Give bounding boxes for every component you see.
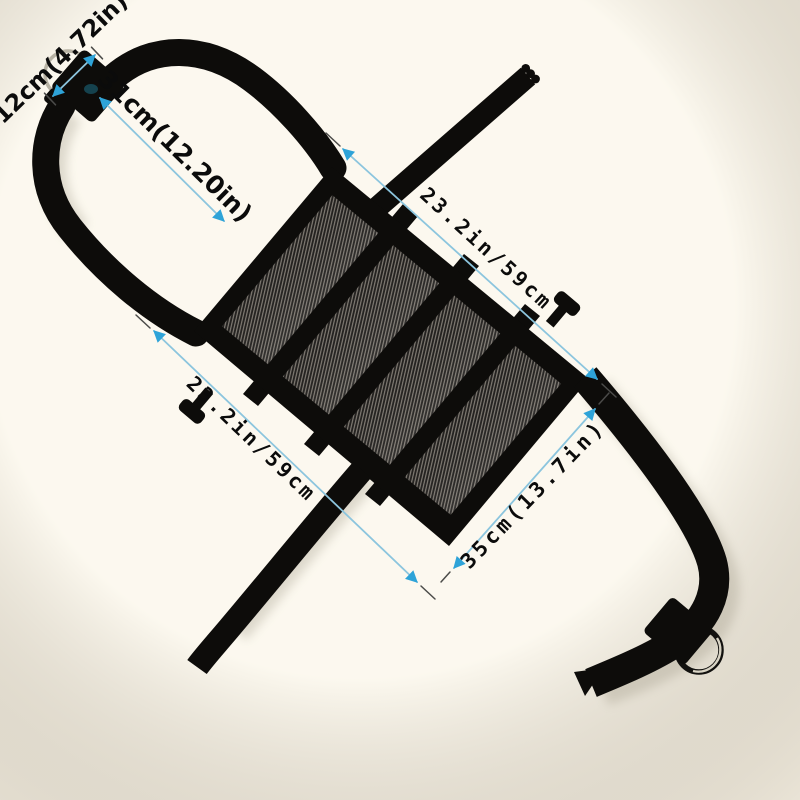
product-dimension-image: 12cm(4.72in) 31cm(12.20in) 23.2in/59cm 2… [0, 0, 800, 800]
product-photo-svg: 12cm(4.72in) 31cm(12.20in) 23.2in/59cm 2… [0, 0, 800, 800]
